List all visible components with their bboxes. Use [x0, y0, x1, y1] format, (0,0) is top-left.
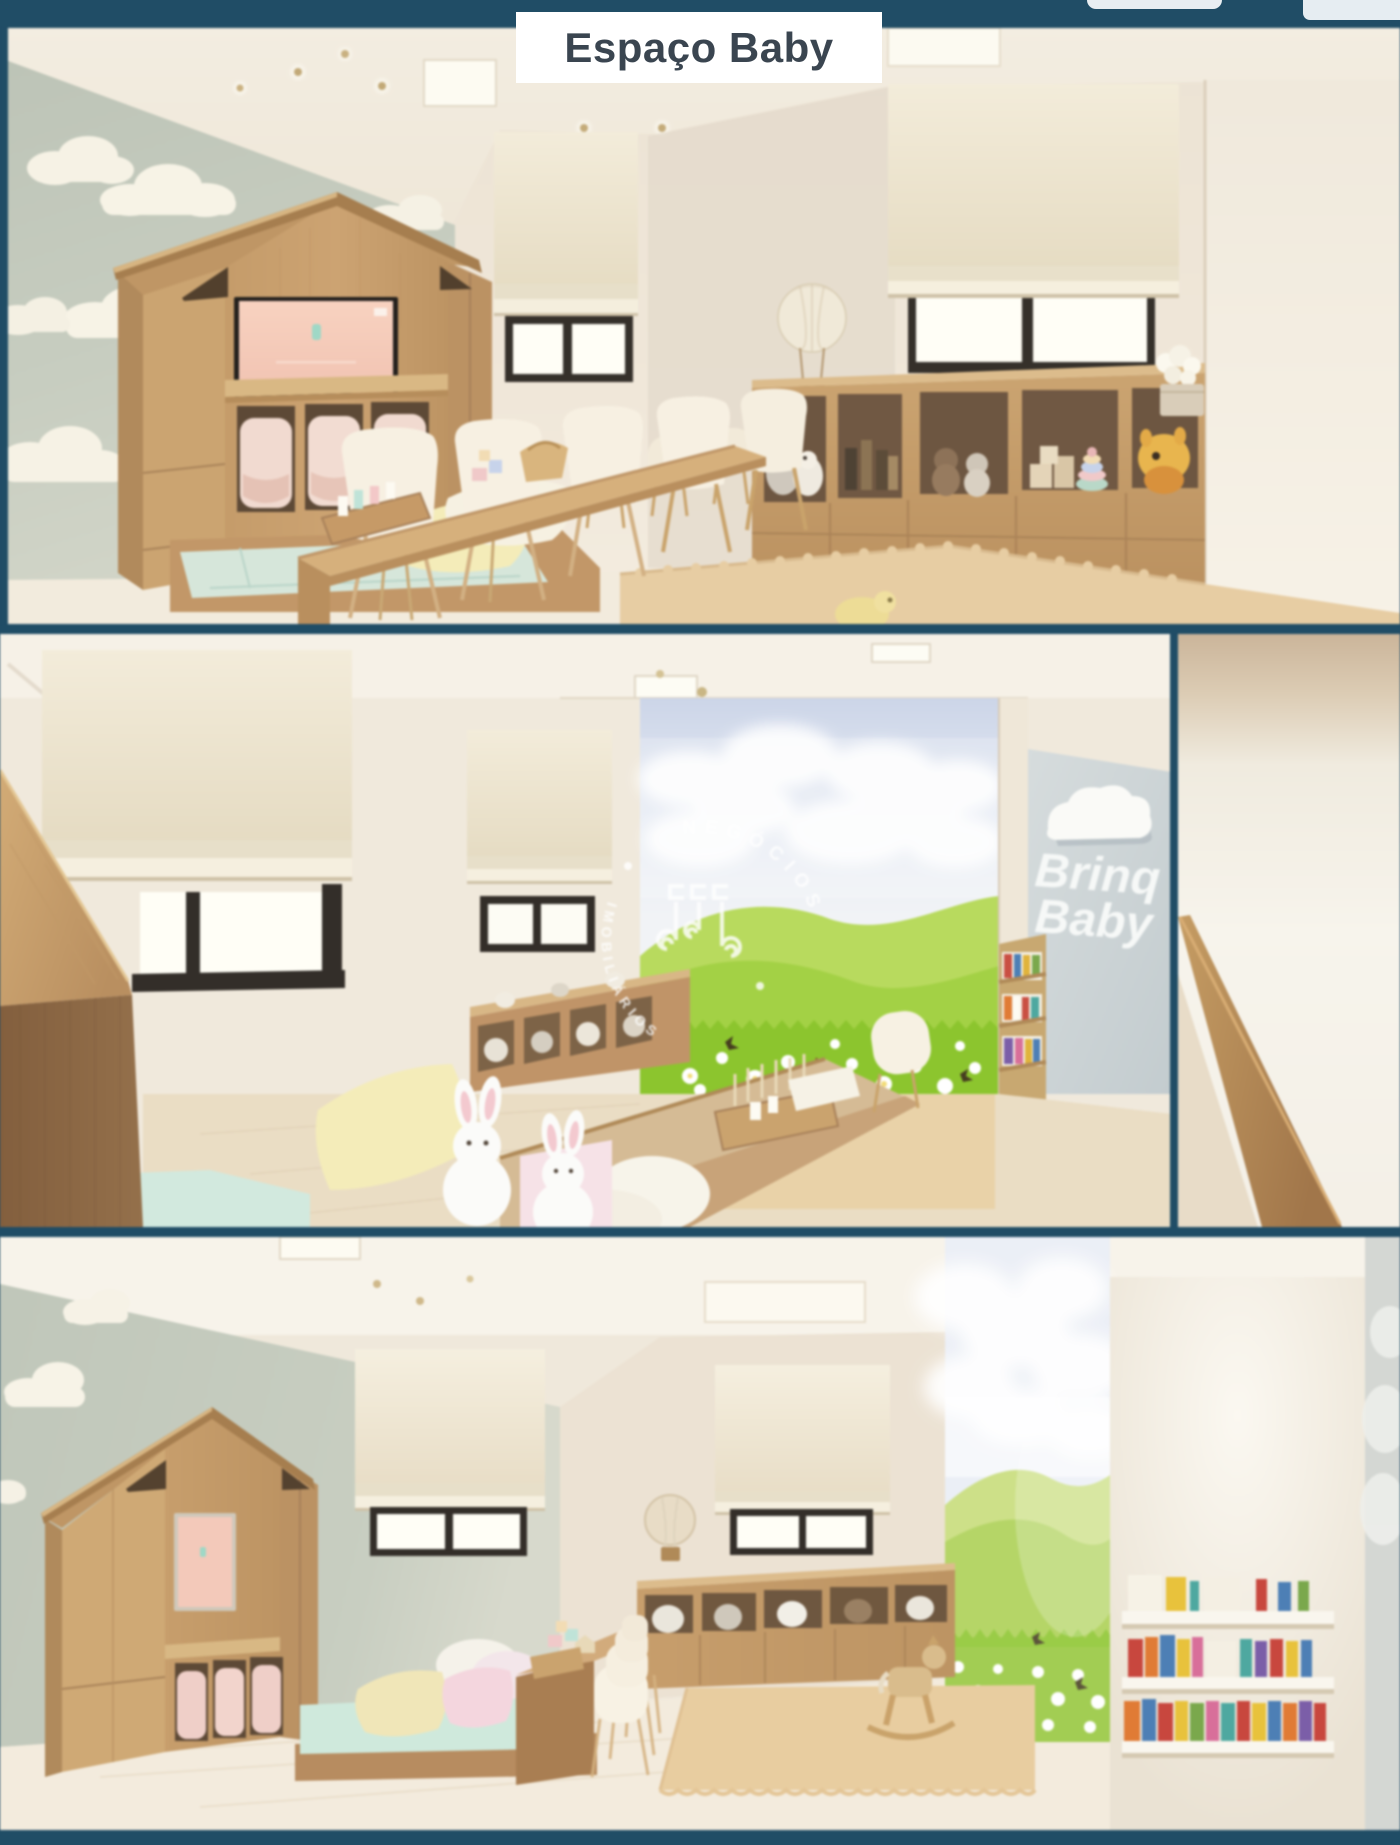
- svg-text:Baby: Baby: [1033, 890, 1156, 951]
